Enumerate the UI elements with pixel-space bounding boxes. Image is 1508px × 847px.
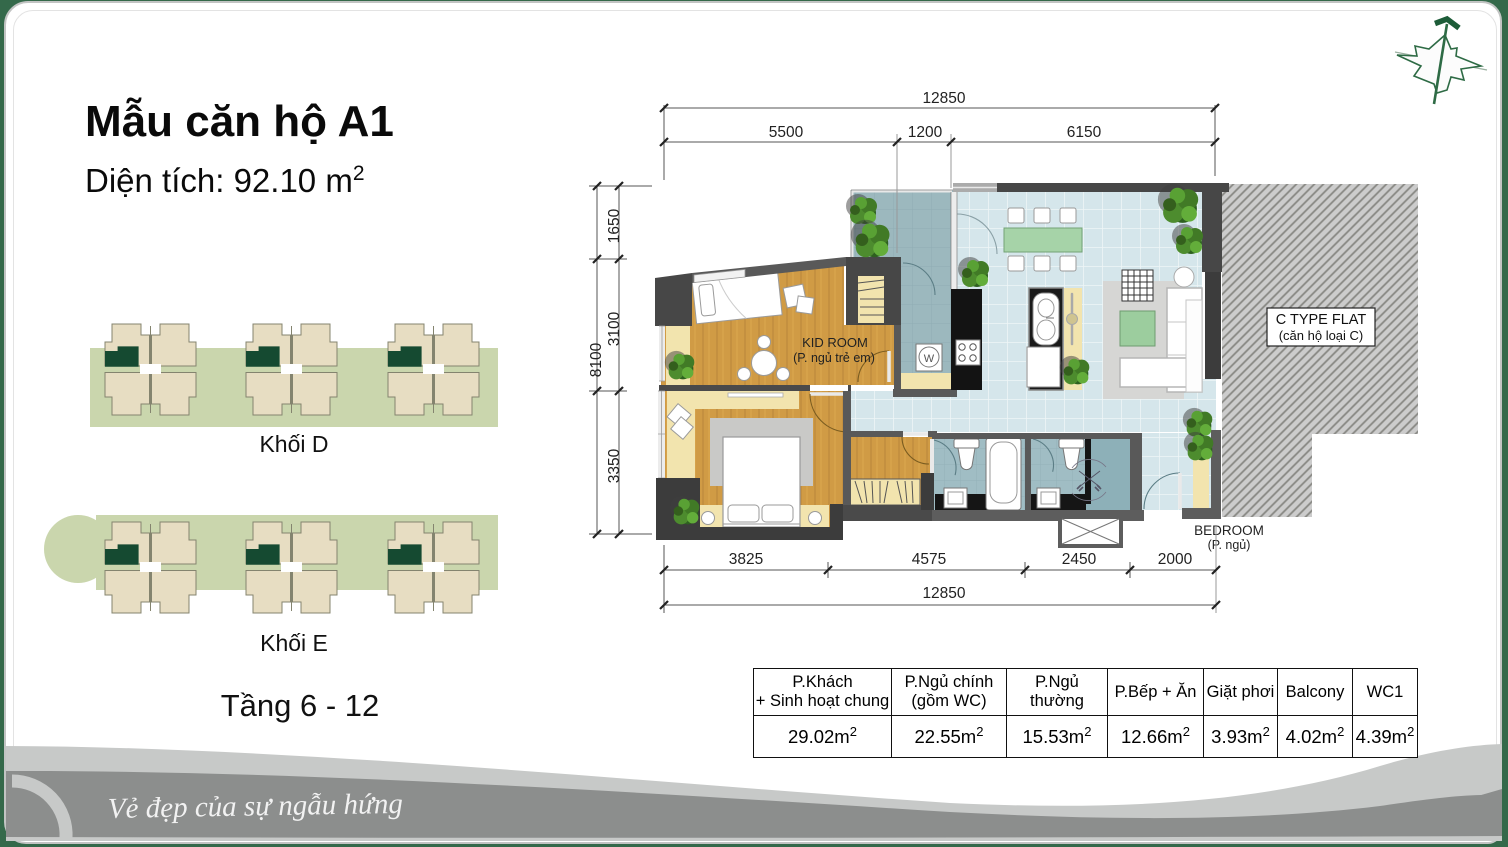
- svg-text:(căn hộ loại C): (căn hộ loại C): [1279, 328, 1364, 343]
- svg-text:5500: 5500: [769, 124, 804, 141]
- svg-text:8100: 8100: [588, 342, 605, 377]
- svg-text:2450: 2450: [1062, 551, 1097, 568]
- svg-text:Khối D: Khối D: [259, 431, 328, 457]
- svg-text:Khối E: Khối E: [260, 630, 328, 656]
- svg-text:Tầng 6 - 12: Tầng 6 - 12: [221, 688, 380, 723]
- svg-text:1200: 1200: [908, 124, 943, 141]
- svg-text:2000: 2000: [1158, 551, 1193, 568]
- svg-text:(P. ngủ trẻ em): (P. ngủ trẻ em): [793, 351, 875, 365]
- svg-text:12850: 12850: [922, 90, 965, 107]
- svg-text:Vẻ đẹp của sự ngẫu hứng: Vẻ đẹp của sự ngẫu hứng: [108, 788, 404, 825]
- svg-text:BEDROOM: BEDROOM: [1194, 523, 1264, 538]
- svg-text:3825: 3825: [729, 551, 763, 568]
- svg-text:4575: 4575: [912, 551, 946, 568]
- svg-text:6150: 6150: [1067, 124, 1102, 141]
- svg-text:W: W: [924, 353, 935, 365]
- svg-text:3100: 3100: [606, 311, 623, 346]
- svg-text:KID ROOM: KID ROOM: [802, 335, 868, 350]
- svg-text:3350: 3350: [606, 448, 623, 483]
- svg-text:12850: 12850: [922, 585, 965, 602]
- svg-text:C TYPE FLAT: C TYPE FLAT: [1276, 312, 1367, 328]
- svg-text:1650: 1650: [606, 208, 623, 243]
- svg-text:(P. ngủ): (P. ngủ): [1208, 538, 1251, 552]
